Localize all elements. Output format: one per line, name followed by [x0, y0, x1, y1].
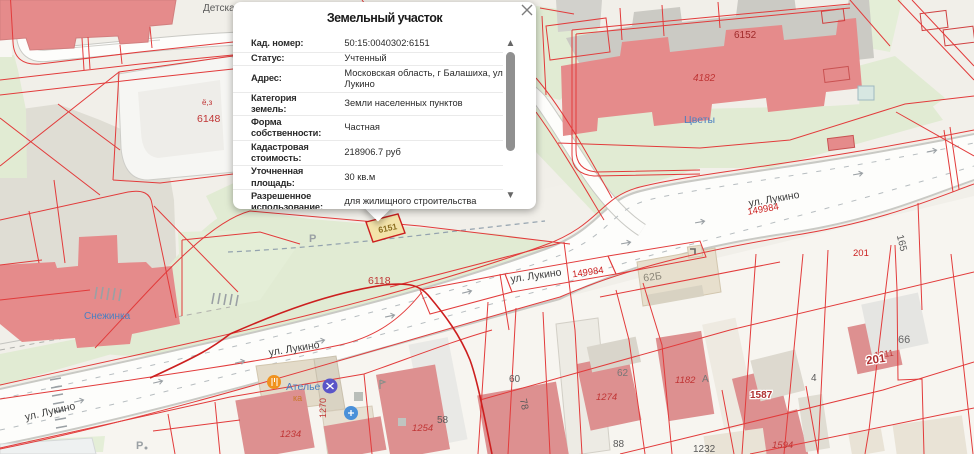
- svg-text:Снежинка: Снежинка: [84, 311, 131, 322]
- svg-text:88: 88: [613, 439, 625, 450]
- svg-text:62: 62: [617, 368, 629, 379]
- svg-text:6152: 6152: [734, 30, 757, 41]
- svg-text:66: 66: [898, 334, 910, 346]
- svg-text:1270: 1270: [318, 398, 328, 418]
- svg-text:Р: Р: [136, 440, 143, 452]
- svg-text:4182: 4182: [693, 73, 716, 84]
- svg-text:1594: 1594: [772, 440, 793, 451]
- svg-text:6148: 6148: [197, 113, 221, 125]
- svg-text:1182: 1182: [675, 375, 696, 386]
- svg-text:ё,з: ё,з: [202, 98, 213, 107]
- svg-text:А: А: [702, 374, 709, 385]
- svg-text:58: 58: [437, 415, 449, 426]
- svg-text:1587: 1587: [750, 390, 773, 401]
- svg-text:Ателье: Ателье: [286, 381, 321, 393]
- svg-text:ка: ка: [293, 393, 302, 403]
- svg-text:1234: 1234: [280, 429, 301, 440]
- svg-text:4: 4: [811, 373, 817, 384]
- svg-text:Р: Р: [309, 233, 316, 245]
- svg-text:1232: 1232: [693, 444, 716, 454]
- svg-text:201: 201: [853, 248, 869, 259]
- svg-text:60: 60: [509, 374, 521, 385]
- svg-text:1274: 1274: [596, 392, 617, 403]
- svg-text:1254: 1254: [412, 423, 433, 434]
- svg-text:6118: 6118: [368, 275, 391, 287]
- svg-text:Цветы: Цветы: [684, 114, 715, 126]
